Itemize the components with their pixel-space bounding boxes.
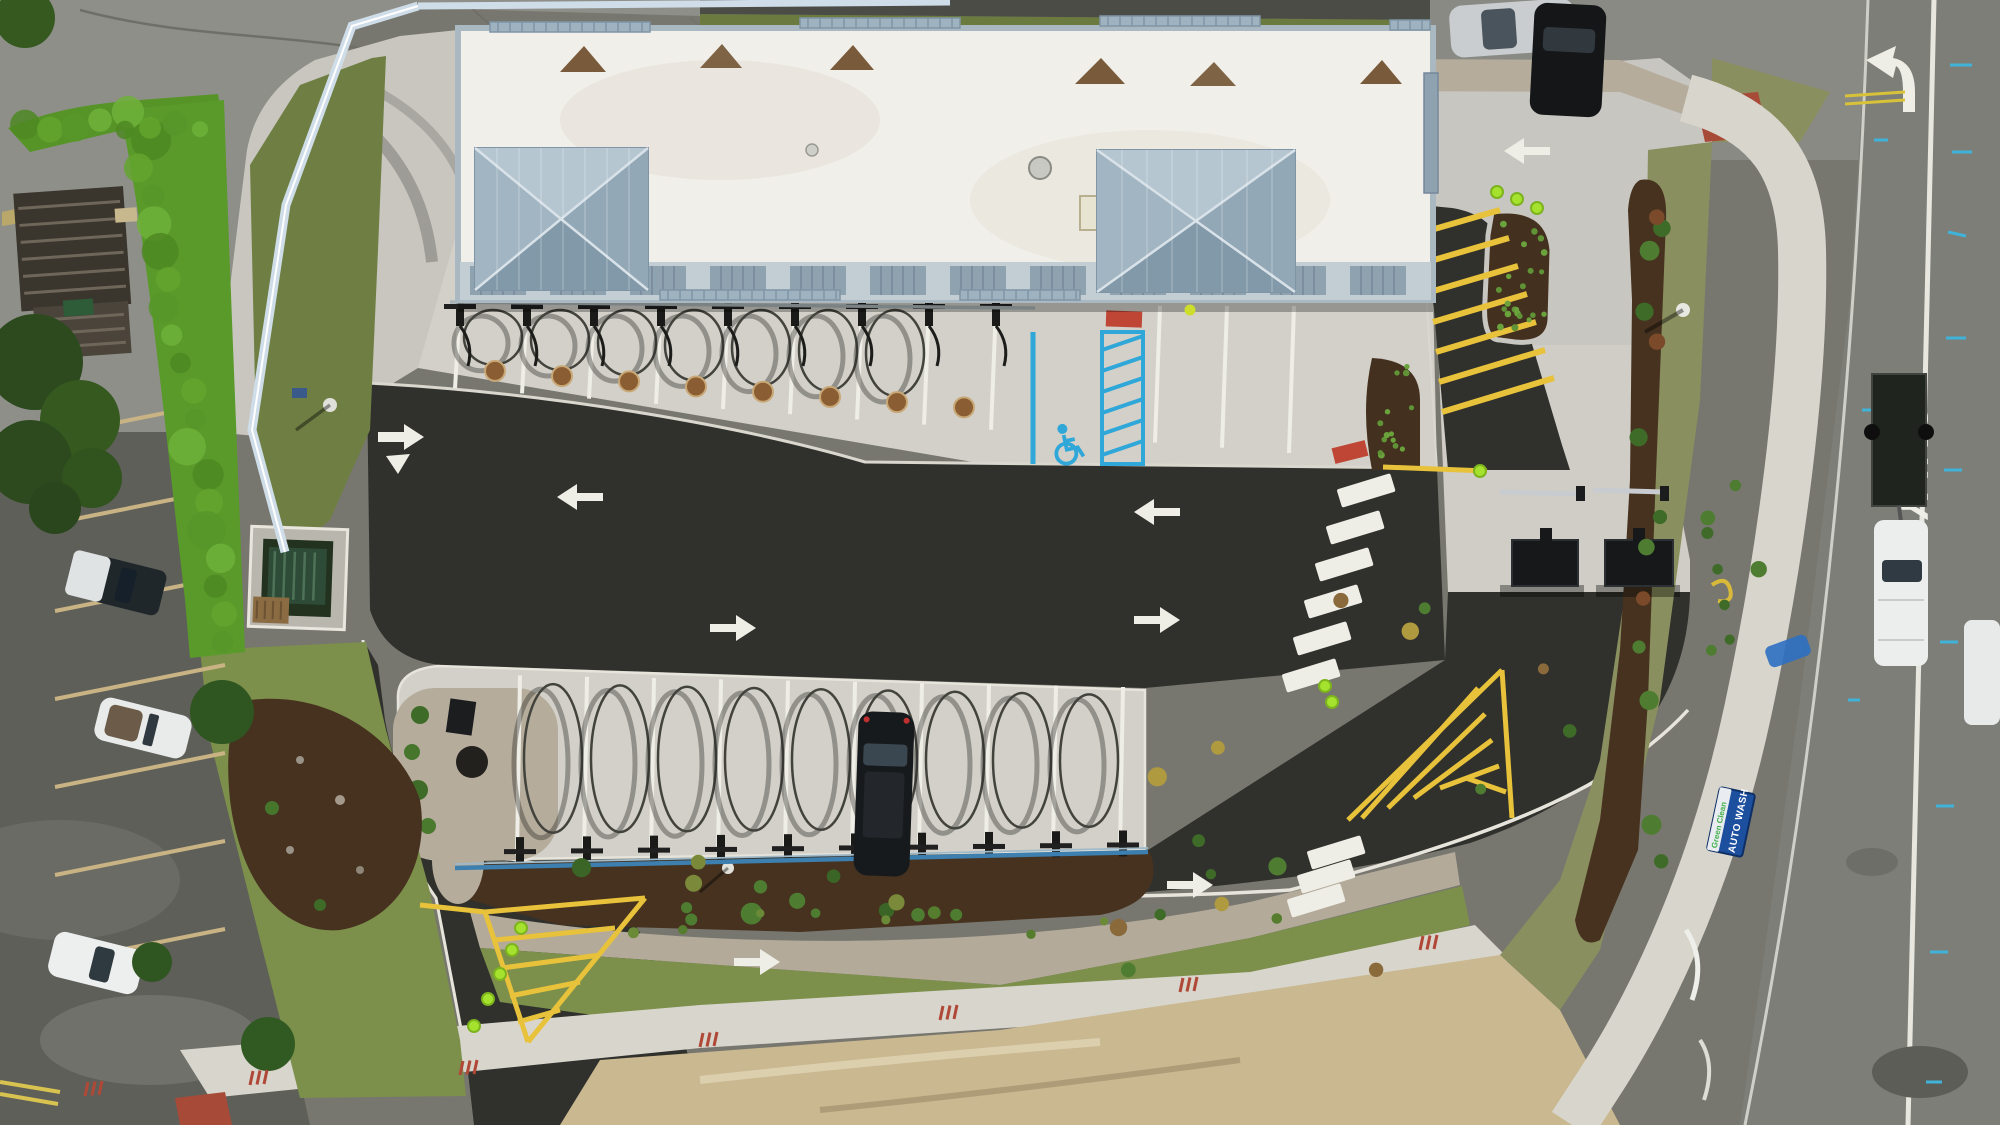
hedge-blob <box>192 459 223 490</box>
vacuum-boom <box>1040 843 1072 848</box>
island-seedling <box>1520 283 1526 289</box>
se-bed-shrub <box>1563 724 1577 738</box>
island-seedling <box>1497 324 1504 331</box>
dumpster <box>267 547 327 605</box>
red-mat <box>1106 310 1143 327</box>
gravel-bed-shrub <box>1026 930 1035 939</box>
verge-shrub <box>1630 428 1648 446</box>
gravel-bed-shrub <box>1100 917 1108 925</box>
gravel-bed-shrub <box>678 925 687 934</box>
bed-shrub <box>691 855 706 870</box>
verge-shrub <box>1640 691 1659 710</box>
island-seedling <box>1530 312 1536 318</box>
se-bed-shrub <box>1192 834 1205 847</box>
traffic-cone <box>506 944 518 956</box>
island-seedling <box>1538 235 1544 241</box>
hedge-blob <box>192 121 208 137</box>
island-seedling <box>1541 312 1546 317</box>
island-seedling <box>1505 301 1511 307</box>
round-bush <box>241 1017 295 1071</box>
bed-seedling <box>1404 364 1409 369</box>
se-bed-shrub <box>1206 869 1216 879</box>
verge-shrub <box>1640 241 1660 261</box>
bed-shrub <box>572 858 591 877</box>
hedge-blob <box>156 267 181 292</box>
bed-seedling <box>1409 405 1414 410</box>
verge-shrub <box>1635 303 1653 321</box>
hedge-blob <box>149 292 179 322</box>
aerial-photo-stage: ONLY <box>0 0 2000 1125</box>
se-bed-shrub <box>1110 919 1127 936</box>
gravel-bed-shrub <box>811 908 821 918</box>
island-seedling <box>1527 317 1532 322</box>
hedge-blob <box>168 428 205 465</box>
bed-seedling <box>1377 420 1383 426</box>
hedge-blob <box>124 153 153 182</box>
se-bed-shrub <box>1268 857 1286 875</box>
roof-vent <box>1029 157 1051 179</box>
pavement-medallion <box>552 366 572 386</box>
traffic-cone <box>1531 202 1543 214</box>
vacuum-boom <box>638 848 670 853</box>
pay-bed-shrub <box>1700 511 1715 526</box>
hedge-blob <box>141 184 164 207</box>
gate-arm <box>1593 490 1663 492</box>
hedge-blob <box>88 108 112 132</box>
louver-segment <box>870 266 926 295</box>
gravel-bed-shrub <box>685 914 697 926</box>
pallet <box>252 596 289 623</box>
bed-shrub <box>685 875 702 892</box>
se-bed-shrub <box>1148 767 1167 786</box>
island-seedling <box>1539 269 1544 274</box>
hi-vis-worker <box>1185 305 1196 316</box>
black-car <box>1529 2 1607 118</box>
bed-seedling <box>1385 409 1390 414</box>
traffic-cone <box>1491 186 1503 198</box>
verge-shrub <box>1653 510 1667 524</box>
island-seedling <box>1496 287 1502 293</box>
gravel-bed-shrub <box>1272 913 1283 924</box>
se-bed-shrub <box>1538 663 1549 674</box>
island-seedling <box>1511 324 1518 331</box>
left-tower-roof <box>475 148 648 290</box>
traffic-cone <box>1511 193 1523 205</box>
pay-bed-shrub <box>1725 635 1735 645</box>
hedge-blob <box>206 544 235 573</box>
hedge-blob <box>204 575 227 598</box>
hedge-blob <box>10 110 40 140</box>
verge-shrub <box>1638 539 1655 556</box>
pay-kiosk <box>1540 528 1552 546</box>
hedge-blob <box>61 114 89 142</box>
se-bed-shrub <box>1155 909 1166 920</box>
carwash-building <box>458 16 1438 312</box>
island-seedling <box>1514 307 1519 312</box>
verge-shrub <box>1632 640 1645 653</box>
gate-arm <box>1500 492 1580 494</box>
gravel-bed-shrub <box>911 908 925 922</box>
hedge-blob <box>211 631 233 653</box>
round-bush <box>190 680 254 744</box>
bed-seedling <box>1393 443 1399 449</box>
hedge-blob <box>142 233 179 270</box>
bed-seedling <box>1394 370 1399 375</box>
pavement-medallion <box>485 361 505 381</box>
vacuum-boom <box>1107 842 1139 847</box>
pavement-medallion <box>954 397 974 417</box>
vacuum-boom <box>504 849 536 854</box>
small-sign <box>292 388 307 398</box>
traffic-cone <box>494 968 506 980</box>
hedge-blob <box>185 408 206 429</box>
pay-bed-shrub <box>1751 561 1767 577</box>
tunnel-entrance-louver <box>1424 73 1438 193</box>
dumpster-enclosure <box>248 526 347 629</box>
traffic-cone <box>1319 680 1331 692</box>
bed-seedling <box>1389 431 1394 436</box>
east-seedling-bed <box>1366 358 1420 470</box>
pay-bed-shrub <box>1719 600 1730 611</box>
white-truck-partial <box>1964 620 2000 725</box>
bed-shrub <box>888 894 904 910</box>
se-bed-shrub <box>1369 963 1383 977</box>
traffic-cone <box>1474 465 1486 477</box>
island-seedling <box>1517 313 1523 319</box>
bed-seedling <box>1391 438 1396 443</box>
vacuum-boom <box>973 844 1005 849</box>
roof-hatch <box>1080 196 1098 230</box>
traffic-cone <box>515 922 527 934</box>
bed-seedling <box>1384 432 1390 438</box>
louver-segment <box>1350 266 1406 295</box>
parapet-rail <box>960 290 1080 300</box>
hedge-blob <box>37 117 63 143</box>
se-bed-shrub <box>1333 593 1348 608</box>
se-bed-shrub <box>1419 602 1431 614</box>
verge-shrub <box>1654 854 1668 868</box>
island-seedling <box>1541 249 1548 256</box>
pay-bed-shrub <box>1730 480 1741 491</box>
se-bed-shrub <box>1402 623 1419 640</box>
pavement-medallion <box>887 392 907 412</box>
bed-shrub <box>789 893 805 909</box>
island-seedling <box>1501 306 1507 312</box>
gravel-bed-shrub <box>928 906 941 919</box>
hedge-blob <box>212 601 237 626</box>
pay-bed-shrub <box>1712 564 1723 575</box>
vacuum-boom <box>705 847 737 852</box>
parapet-rail <box>660 290 840 300</box>
island-seedling <box>1500 221 1507 228</box>
island-seedling <box>1521 241 1527 247</box>
verge-shrub <box>1649 209 1665 225</box>
se-bed-shrub <box>1215 897 1229 911</box>
black-suv <box>853 711 915 877</box>
hedge-blob <box>139 117 161 139</box>
pavement-medallion <box>686 377 706 397</box>
bed-shrub <box>827 869 841 883</box>
se-bed-shrub <box>1211 741 1225 755</box>
bed-seedling <box>1378 450 1384 456</box>
pavement-medallion <box>753 382 773 402</box>
hedge-blob <box>181 378 206 403</box>
se-bed-shrub <box>1475 784 1486 795</box>
pay-canopy <box>1512 540 1578 586</box>
bed-seedling <box>1403 370 1410 377</box>
aerial-scene: ONLY <box>0 0 2000 1125</box>
verge-shrub <box>1649 334 1665 350</box>
white-fence-north <box>418 2 950 6</box>
se-bed-shrub <box>1121 963 1136 978</box>
island-seedling <box>1505 311 1512 318</box>
traffic-cone <box>482 993 494 1005</box>
vacuum-boom <box>906 845 938 850</box>
island-seedling <box>1506 274 1511 279</box>
traffic-cone <box>1326 696 1338 708</box>
bed-seedling <box>1400 446 1405 451</box>
hedge-blob <box>161 324 182 345</box>
island-seedling <box>1531 228 1538 235</box>
pay-bed-shrub <box>1701 527 1713 539</box>
pavement-medallion <box>619 371 639 391</box>
gravel-bed-shrub <box>628 927 639 938</box>
vacuum-boom <box>571 848 603 853</box>
traffic-cone <box>468 1020 480 1032</box>
teardrop-island <box>1485 211 1552 342</box>
gravel-bed-shrub <box>881 915 890 924</box>
bed-shrub <box>754 880 767 893</box>
island-seedling <box>1528 268 1534 274</box>
hedge-blob <box>116 121 134 139</box>
hedge-blob <box>170 353 191 374</box>
verge-shrub <box>1636 591 1650 605</box>
right-tower-roof <box>1097 150 1295 292</box>
pavement-medallion <box>820 387 840 407</box>
gravel-bed-shrub <box>681 902 692 913</box>
pay-bed-shrub <box>1706 645 1717 656</box>
verge-shrub <box>1642 815 1662 835</box>
hedge-blob <box>163 111 188 136</box>
gravel-bed-shrub <box>756 909 764 917</box>
bed-shrub <box>950 909 962 921</box>
vacuum-boom <box>772 846 804 851</box>
